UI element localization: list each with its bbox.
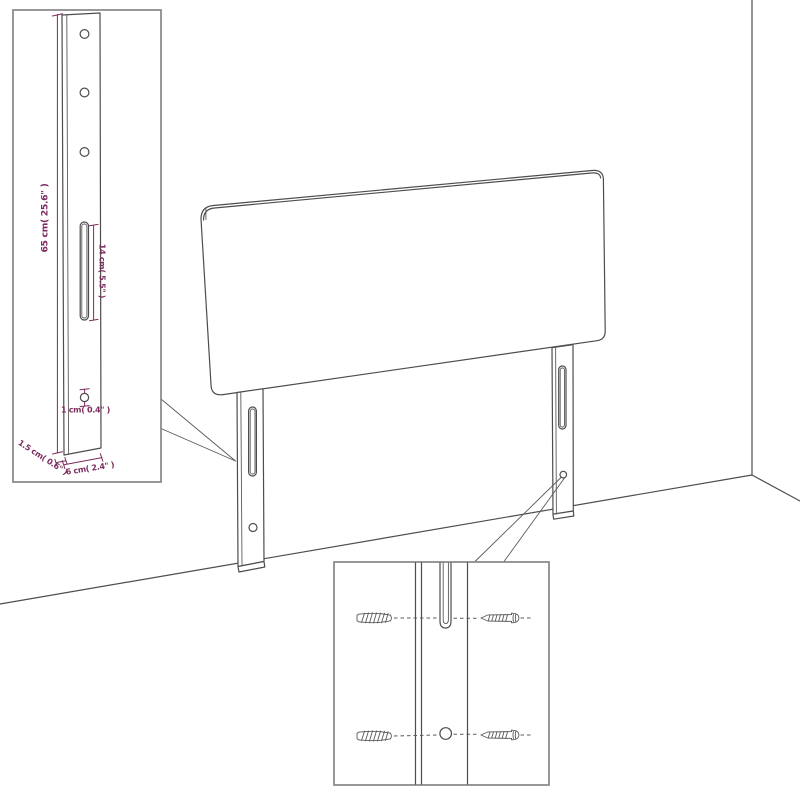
dim-label-slot: 14 cm( 5.5" )	[98, 244, 107, 298]
floor-line-right	[752, 475, 800, 501]
diagram-canvas: 65 cm( 25.6" ) 14 cm( 5.5" ) 1 cm( 0.4" …	[0, 0, 800, 800]
left-leg	[237, 389, 265, 572]
leader-line-inset2-a	[475, 477, 562, 562]
leader-line-inset1-b	[161, 429, 236, 462]
dim-label-hole: 1 cm( 0.4" )	[61, 406, 110, 415]
leader-line-inset2-b	[504, 478, 565, 562]
headboard-panel	[201, 170, 605, 394]
product-diagram: 65 cm( 25.6" ) 14 cm( 5.5" ) 1 cm( 0.4" …	[0, 0, 800, 800]
hardware-detail-inset-box	[334, 562, 549, 785]
callout-leaders	[161, 399, 565, 562]
leg-detail-inset: 65 cm( 25.6" ) 14 cm( 5.5" ) 1 cm( 0.4" …	[13, 10, 161, 482]
hardware-detail-inset	[334, 562, 549, 785]
leader-line-inset1-a	[161, 399, 236, 461]
right-leg	[552, 345, 574, 520]
dim-label-height: 65 cm( 25.6" )	[40, 183, 51, 252]
